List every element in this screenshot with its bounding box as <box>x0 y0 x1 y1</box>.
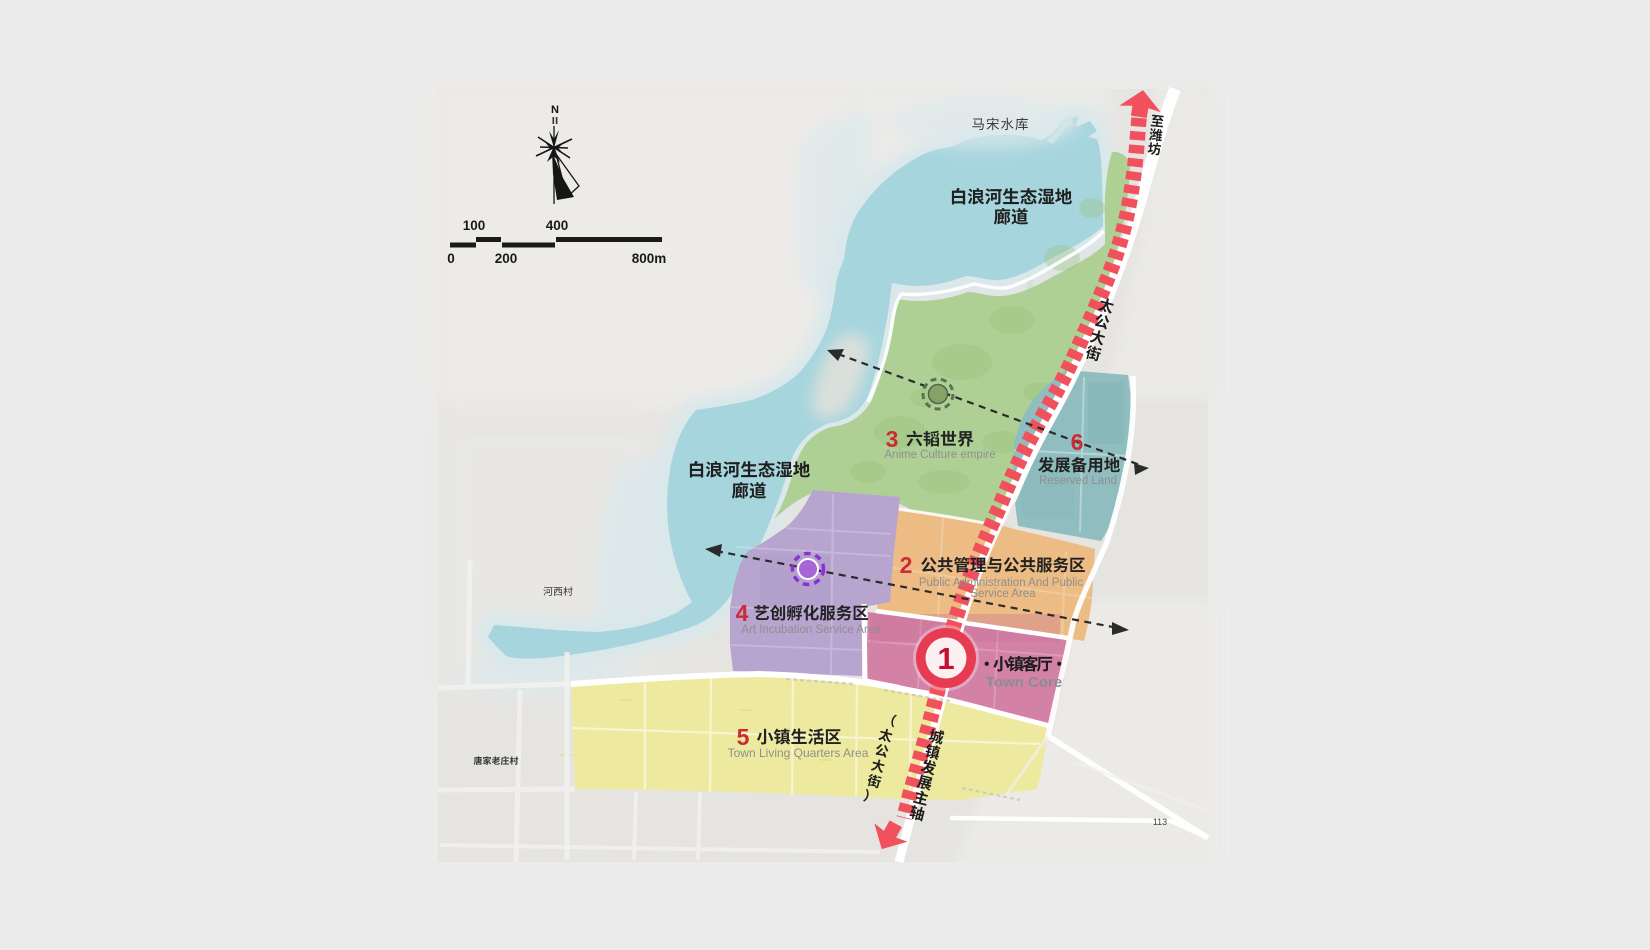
svg-text:113: 113 <box>1153 817 1167 827</box>
svg-text:4: 4 <box>736 600 749 626</box>
svg-text:Town Living Quarters Area: Town Living Quarters Area <box>728 746 869 760</box>
svg-text:1: 1 <box>937 641 954 676</box>
svg-text:6: 6 <box>1071 429 1084 455</box>
svg-text:Service Area: Service Area <box>970 588 1036 600</box>
svg-text:200: 200 <box>495 251 518 266</box>
svg-text:2: 2 <box>900 552 913 578</box>
svg-text:Anime Culture empire: Anime Culture empire <box>884 449 995 461</box>
svg-text:0: 0 <box>447 251 455 266</box>
svg-text:Art Incubation Service Area: Art Incubation Service Area <box>741 624 881 636</box>
svg-text:100: 100 <box>463 218 486 233</box>
svg-text:Town Core: Town Core <box>986 674 1062 691</box>
svg-text:N: N <box>551 104 559 116</box>
svg-text:Reserved Land: Reserved Land <box>1039 475 1117 487</box>
svg-text:800m: 800m <box>632 251 667 266</box>
svg-text:400: 400 <box>546 218 569 233</box>
